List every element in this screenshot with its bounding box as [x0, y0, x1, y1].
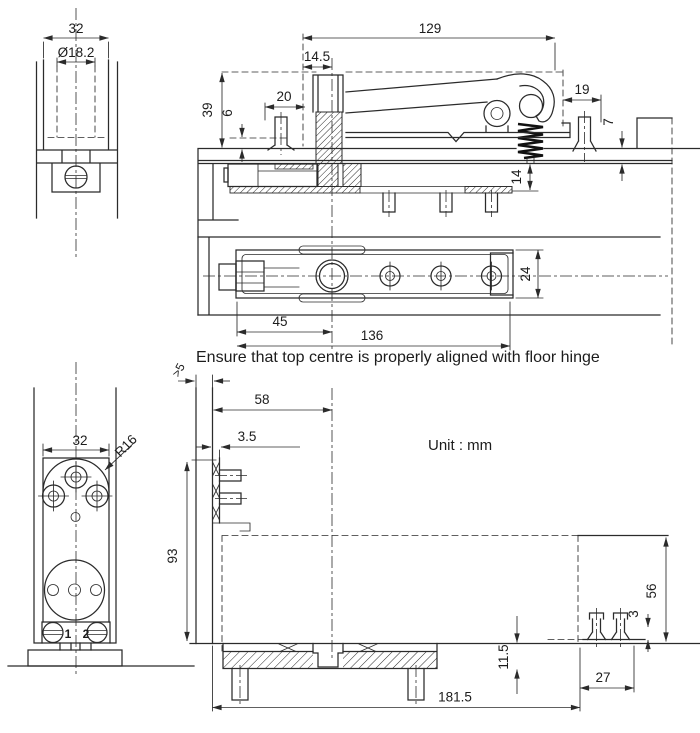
dim-129: 129: [419, 21, 442, 36]
plate-studs: [383, 193, 498, 212]
valve-screw-2: [87, 623, 107, 643]
dim-19: 19: [574, 82, 589, 97]
spindle-section: [316, 112, 342, 164]
cement-box-section: [223, 644, 437, 707]
installation-drawing: 32 Ø18.2: [0, 0, 700, 733]
dim-56: 56: [644, 583, 659, 598]
dim-7: 7: [601, 118, 616, 126]
pivot-body-outline: [37, 60, 118, 218]
valve-label-1: 1: [65, 627, 72, 641]
spindle-top: [313, 75, 343, 112]
valve-label-2: 2: [83, 627, 90, 641]
closer-arm: [346, 79, 497, 113]
adjusting-screw-head: [219, 264, 236, 290]
dim-93: 93: [165, 548, 180, 563]
view-top-centre-plan: 45 136 24: [198, 237, 668, 350]
dim-20: 20: [276, 89, 291, 104]
dim-14-5: 14.5: [304, 49, 330, 64]
dim-45: 45: [272, 314, 287, 329]
dim-3: 3: [626, 610, 641, 618]
top-centre-plate: [236, 250, 513, 298]
cover-hidden-outline: [222, 536, 578, 652]
arm-hook: [497, 74, 554, 122]
dim-6: 6: [220, 109, 235, 117]
view-top-centre-section: 129 14.5 39 6 20 19 7 14: [198, 21, 700, 352]
dim-58: 58: [254, 392, 269, 407]
dim-gt5: >5: [169, 361, 188, 380]
dim-11-5: 11.5: [496, 644, 511, 669]
anchor-bolts: [232, 669, 424, 701]
dim-32-bottom: 32: [72, 433, 87, 448]
view-floor-hinge-front: 1 2 32 R16: [8, 362, 194, 674]
dim-27: 27: [595, 670, 610, 685]
spring: [518, 124, 543, 158]
cover-end: [213, 523, 251, 531]
frame-and-door-edge: [196, 388, 213, 644]
alignment-note: Ensure that top centre is properly align…: [196, 349, 600, 366]
drawing-sheet: 32 Ø18.2: [0, 0, 700, 733]
dim-39: 39: [200, 102, 215, 117]
dim-181-5: 181.5: [438, 690, 472, 705]
base-plate: [28, 650, 122, 666]
view-top-pivot-front: 32 Ø18.2: [37, 8, 118, 258]
arm-pivot: [484, 101, 510, 127]
plate-screws: [39, 462, 113, 511]
dim-32-top: 32: [68, 21, 83, 36]
unit-label: Unit : mm: [428, 437, 492, 454]
plate-section: [230, 187, 360, 194]
dim-3-5: 3.5: [238, 429, 257, 444]
dim-18-2: Ø18.2: [58, 45, 95, 60]
pin-hole: [71, 513, 80, 522]
dim-24: 24: [518, 266, 533, 282]
valve-screw-1: [43, 623, 63, 643]
dim-136: 136: [361, 328, 384, 343]
view-floor-hinge-plan: >5 58 3.5 93 56 3 11.5 27 181.5 Unit : m…: [165, 361, 700, 711]
spindle-recess: [313, 644, 343, 668]
roller-ball: [520, 95, 543, 118]
door-and-plate: [34, 388, 116, 643]
transom-outline: [198, 118, 700, 315]
adjustment-dial: [45, 560, 105, 620]
dim-14: 14: [509, 169, 524, 185]
